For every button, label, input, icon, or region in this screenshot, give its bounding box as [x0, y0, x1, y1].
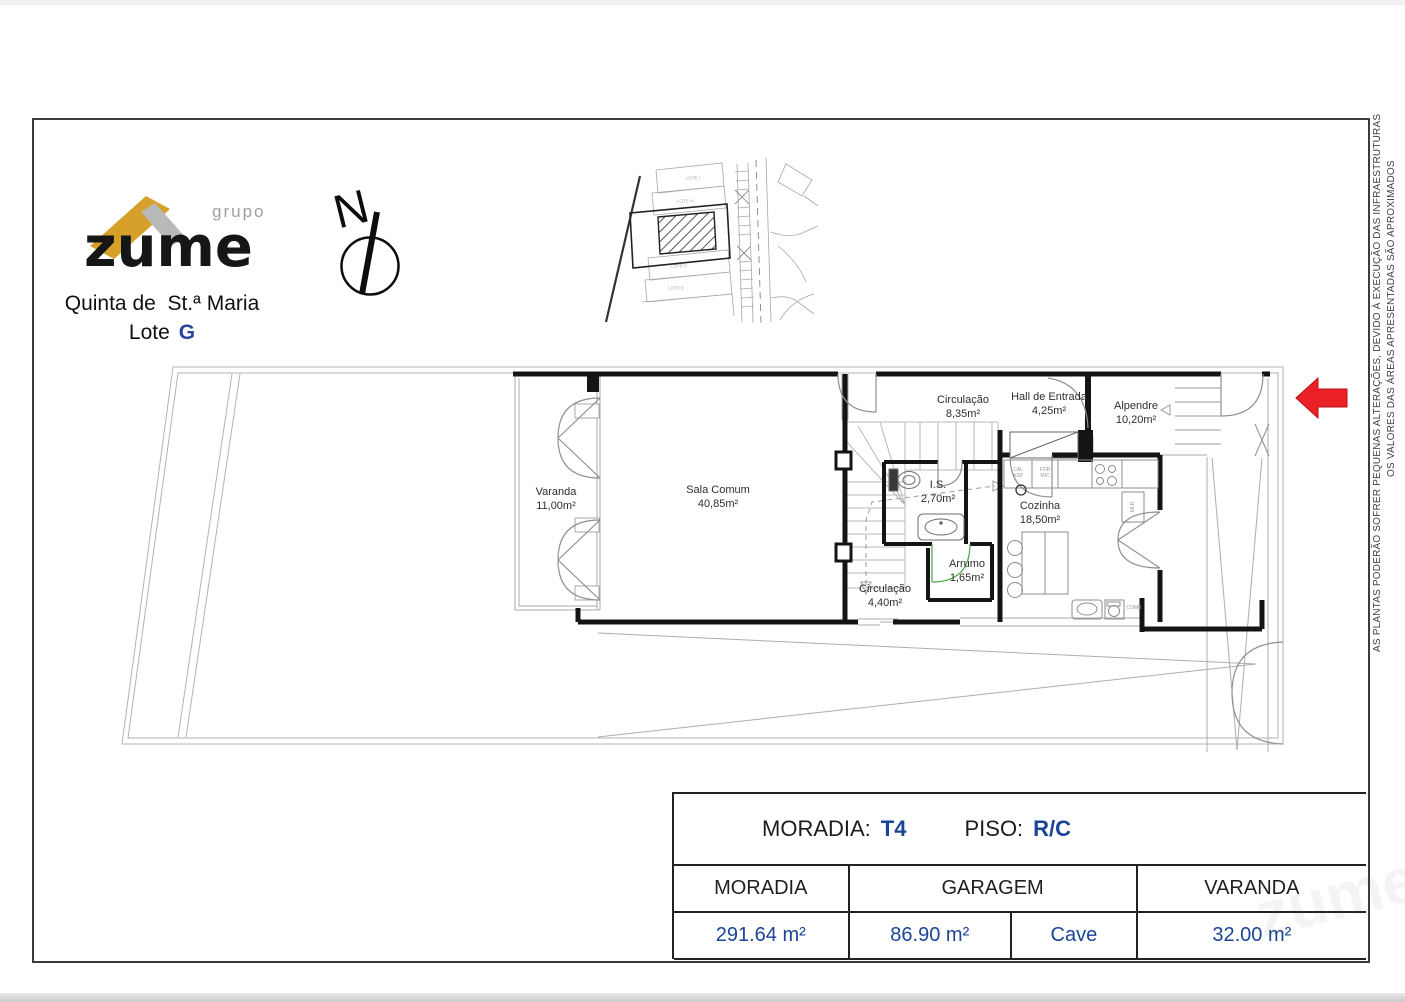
- piso-value: R/C: [1033, 816, 1071, 842]
- cabinet-label-mlr: MLR: [1130, 502, 1136, 513]
- ramp-markings: [598, 378, 1269, 752]
- project-lot: LoteG: [52, 321, 272, 345]
- value-moradia-area: 291.64 m²: [674, 913, 850, 960]
- room-label-arrumo: Arrumo 1,65m²: [949, 557, 985, 586]
- sheet-title: MORADIA: T4 PISO: R/C: [672, 792, 1366, 864]
- plan-sheet: grupo zume Quinta de St.ª Maria LoteG N …: [0, 0, 1405, 1002]
- piso-label: PISO:: [964, 816, 1023, 842]
- room-label-cozinha: Cozinha 18,50m²: [1020, 499, 1060, 528]
- room-label-circulacao-1: Circulação 8,35m²: [937, 393, 989, 422]
- value-garagem-floor: Cave: [1012, 913, 1138, 960]
- cabinet-label-comb: COMB: [1127, 606, 1142, 612]
- lot-boundary: [122, 367, 1283, 744]
- lot-value: G: [179, 321, 195, 344]
- room-label-sala-comum: Sala Comum 40,85m²: [686, 483, 750, 512]
- header-garagem: GARAGEM: [850, 866, 1138, 913]
- brand-zume-text: zume: [84, 220, 253, 276]
- room-label-hall: Hall de Entrada 4,25m²: [1011, 390, 1087, 419]
- room-label-is: I.S. 2,70m²: [921, 478, 955, 507]
- site-plan: [606, 158, 818, 323]
- site-lot-label: LOTE I: [686, 176, 700, 181]
- value-garagem-area: 86.90 m²: [850, 913, 1013, 960]
- disclaimer-areas: OS VALORES DAS ÁREAS APRESENTADAS SÃO AP…: [1386, 160, 1397, 477]
- entrance-arrow-icon: [1296, 378, 1347, 418]
- lot-label: Lote: [129, 321, 170, 344]
- moradia-value: T4: [881, 816, 907, 842]
- moradia-label: MORADIA:: [762, 816, 871, 842]
- room-label-alpendre: Alpendre 10,20m²: [1114, 399, 1158, 428]
- site-lot-label: LOTE E: [668, 286, 684, 291]
- project-location: Quinta de St.ª Maria: [52, 292, 272, 316]
- entry-steps: [1161, 388, 1221, 444]
- cabinet-label-for-mic: FOR MIC: [1040, 468, 1051, 480]
- cabinet-label-cal-asp: CAL ASP: [1013, 468, 1023, 480]
- site-lot-label: LOTE F: [671, 264, 687, 269]
- kitchen-fixtures: [1004, 460, 1158, 619]
- header-moradia: MORADIA: [674, 866, 850, 913]
- room-label-varanda: Varanda 11,00m²: [536, 485, 577, 514]
- site-lot-label: LOTE H: [677, 199, 693, 204]
- disclaimer-plans: AS PLANTAS PODERÃO SOFRER PEQUENAS ALTER…: [1372, 114, 1383, 652]
- room-label-circulacao-2: Circulação 4,40m²: [859, 582, 911, 611]
